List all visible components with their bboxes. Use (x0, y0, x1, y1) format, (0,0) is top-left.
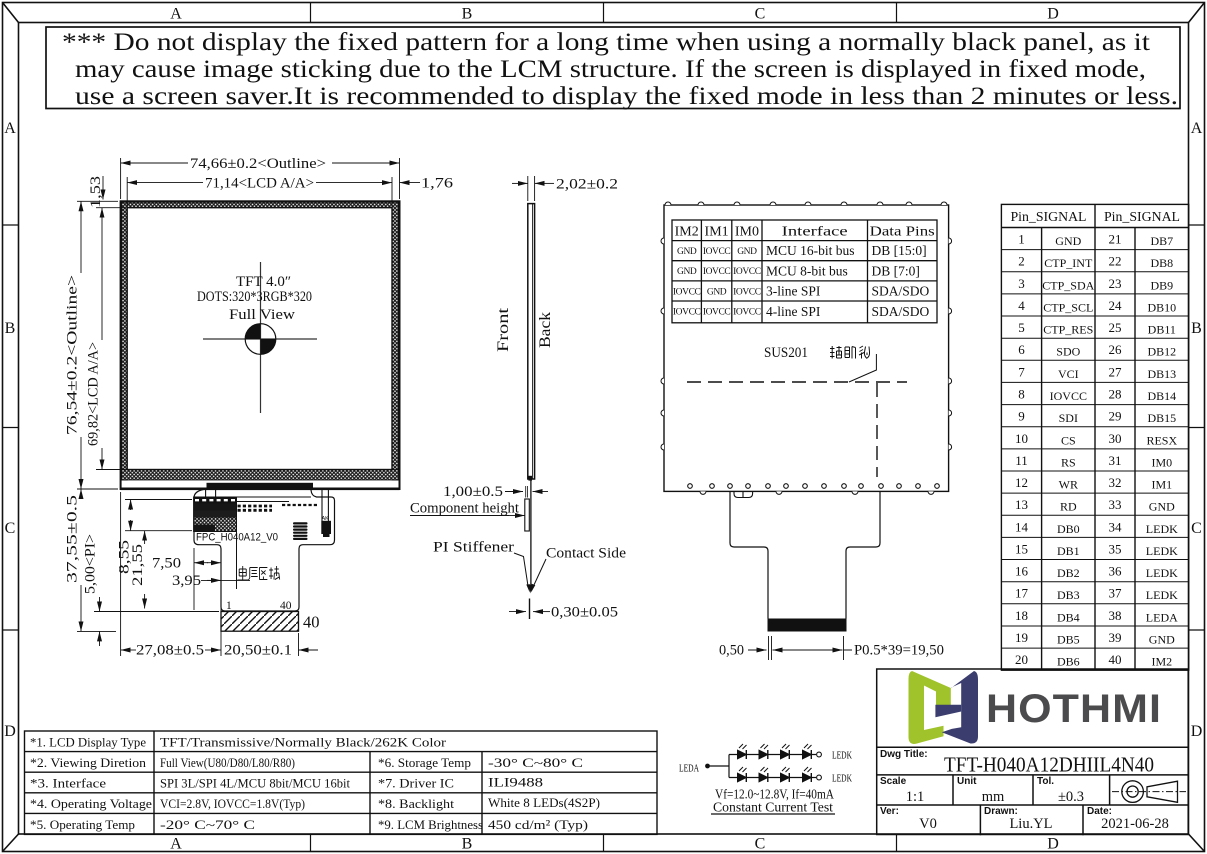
svg-text:Constant Current Test: Constant Current Test (713, 801, 833, 816)
svg-text:24: 24 (1109, 298, 1123, 313)
svg-text:D: D (1047, 6, 1059, 23)
svg-text:CTP_INT: CTP_INT (1044, 256, 1093, 270)
svg-text:26: 26 (1109, 342, 1123, 357)
svg-text:30: 30 (1109, 431, 1122, 446)
svg-text:GND: GND (737, 247, 757, 257)
svg-text:40: 40 (280, 600, 292, 612)
svg-text:LEDK: LEDK (1146, 588, 1178, 602)
svg-text:CTP_SDA: CTP_SDA (1042, 278, 1094, 292)
svg-text:*6. Storage Temp: *6. Storage Temp (378, 755, 471, 770)
svg-text:DB5: DB5 (1057, 633, 1080, 647)
svg-text:SDA/SDO: SDA/SDO (872, 284, 930, 299)
svg-text:10: 10 (1015, 431, 1028, 446)
svg-text:450 cd/m² (Typ): 450 cd/m² (Typ) (488, 817, 588, 832)
svg-text:IM0: IM0 (735, 225, 759, 240)
svg-text:27: 27 (1109, 364, 1123, 379)
svg-text:5,00<PI>: 5,00<PI> (83, 534, 99, 594)
svg-text:Component height: Component height (410, 501, 519, 517)
svg-text:LEDK: LEDK (1146, 522, 1178, 536)
svg-text:LEDK: LEDK (1146, 544, 1178, 558)
svg-text:1: 1 (1018, 232, 1025, 247)
svg-text:A: A (170, 836, 182, 853)
svg-text:40: 40 (303, 613, 320, 632)
svg-text:IM1: IM1 (705, 225, 729, 240)
svg-text:9: 9 (1018, 409, 1025, 424)
svg-text:17: 17 (1015, 586, 1029, 601)
svg-text:-30° C~80° C: -30° C~80° C (488, 755, 583, 770)
svg-text:3,95: 3,95 (172, 573, 201, 589)
svg-text:1,76: 1,76 (421, 176, 453, 192)
svg-text:Full View(U80/D80/L80/R80): Full View(U80/D80/L80/R80) (160, 755, 295, 770)
svg-text:27,08±0.5: 27,08±0.5 (136, 643, 204, 659)
svg-text:7,50: 7,50 (152, 556, 181, 572)
svg-text:MCU 8-bit bus: MCU 8-bit bus (766, 264, 848, 279)
svg-text:Scale: Scale (880, 776, 907, 787)
svg-text:GND: GND (707, 288, 727, 298)
svg-text:11: 11 (1015, 453, 1028, 468)
svg-text:DB0: DB0 (1057, 522, 1080, 536)
svg-text:IOVCC: IOVCC (733, 308, 761, 318)
svg-text:HOTHMI: HOTHMI (986, 687, 1162, 731)
svg-text:Interface: Interface (782, 225, 848, 240)
svg-text:SDO: SDO (1056, 345, 1080, 359)
svg-text:VCI: VCI (1058, 367, 1079, 381)
svg-text:LEDK: LEDK (832, 773, 852, 785)
svg-text:DB12: DB12 (1147, 345, 1176, 359)
svg-text:*2. Viewing Diretion: *2. Viewing Diretion (30, 755, 147, 770)
svg-text:0,30±0.05: 0,30±0.05 (551, 605, 618, 621)
svg-text:76,54±0.2<Outline>: 76,54±0.2<Outline> (65, 275, 81, 435)
svg-text:IOVCC: IOVCC (673, 308, 701, 318)
svg-text:DB4: DB4 (1057, 610, 1080, 624)
svg-text:14: 14 (1015, 519, 1029, 534)
svg-text:LEDK: LEDK (832, 750, 852, 762)
svg-text:25: 25 (1109, 320, 1122, 335)
svg-text:DB7: DB7 (1150, 234, 1173, 248)
svg-text:Front: Front (495, 307, 512, 352)
svg-text:*3. Interface: *3. Interface (30, 776, 106, 791)
svg-text:36: 36 (1109, 564, 1123, 579)
svg-text:1,53: 1,53 (88, 176, 104, 208)
svg-text:FPC_H040A12_V0: FPC_H040A12_V0 (196, 532, 278, 544)
svg-text:DB1: DB1 (1057, 544, 1080, 558)
svg-text:Pin_SIGNAL: Pin_SIGNAL (1011, 209, 1087, 224)
svg-text:B: B (462, 6, 473, 23)
svg-text:*8. Backlight: *8. Backlight (378, 796, 454, 811)
svg-text:*** Do not display the fixed p: *** Do not display the fixed pattern for… (62, 29, 1150, 56)
svg-text:3: 3 (1018, 276, 1025, 291)
svg-text:19: 19 (1015, 630, 1028, 645)
svg-text:13: 13 (1015, 497, 1028, 512)
svg-text:4: 4 (1018, 298, 1025, 313)
svg-text:1: 1 (226, 600, 232, 612)
svg-text:69,82<LCD A/A>: 69,82<LCD A/A> (86, 342, 102, 446)
svg-text:GND: GND (677, 267, 697, 277)
svg-text:6: 6 (1018, 342, 1025, 357)
svg-text:IM0: IM0 (1151, 455, 1172, 469)
svg-text:IOVCC: IOVCC (673, 288, 701, 298)
svg-text:SPI 3L/SPI 4L/MCU 8bit/MCU 16b: SPI 3L/SPI 4L/MCU 8bit/MCU 16bit (160, 776, 350, 791)
svg-text:71,14<LCD A/A>: 71,14<LCD A/A> (205, 176, 314, 192)
svg-text:35: 35 (1109, 542, 1122, 557)
svg-text:Liu.YL: Liu.YL (1009, 816, 1052, 832)
svg-text:A: A (1191, 120, 1203, 137)
svg-text:DB10: DB10 (1147, 300, 1176, 314)
svg-text:A: A (170, 6, 182, 23)
svg-text:B: B (5, 320, 16, 337)
svg-text:32: 32 (1109, 475, 1122, 490)
svg-text:PI Stiffener: PI Stiffener (433, 540, 514, 556)
svg-text:IOVCC: IOVCC (703, 308, 731, 318)
svg-text:CTP_SCL: CTP_SCL (1043, 300, 1093, 314)
svg-text:SDI: SDI (1059, 411, 1078, 425)
svg-text:IM2: IM2 (675, 225, 699, 240)
svg-text:RESX: RESX (1146, 433, 1177, 447)
svg-text:DB [7:0]: DB [7:0] (872, 264, 920, 279)
svg-text:3-line SPI: 3-line SPI (766, 284, 821, 299)
svg-text:Dwg Title:: Dwg Title: (880, 749, 928, 760)
svg-text:DB15: DB15 (1147, 411, 1176, 425)
svg-text:*5. Operating Temp: *5. Operating Temp (30, 817, 135, 832)
svg-text:TFT 4.0″: TFT 4.0″ (236, 274, 291, 290)
svg-text:34: 34 (1109, 519, 1123, 534)
svg-text:C: C (755, 6, 766, 23)
svg-text:20,50±0.1: 20,50±0.1 (224, 643, 292, 659)
svg-text:Back: Back (537, 312, 554, 348)
svg-text:D: D (4, 723, 16, 740)
svg-text:IOVCC: IOVCC (703, 247, 731, 257)
svg-text:*7. Driver IC: *7. Driver IC (378, 776, 454, 791)
svg-text:SUS201: SUS201 (764, 345, 808, 361)
svg-text:LEDA: LEDA (679, 763, 699, 775)
svg-text:40: 40 (1109, 652, 1122, 667)
svg-text:DB3: DB3 (1057, 588, 1080, 602)
svg-text:Ver:: Ver: (880, 806, 899, 817)
svg-text:Pin_SIGNAL: Pin_SIGNAL (1104, 209, 1180, 224)
svg-text:-20° C~70° C: -20° C~70° C (160, 817, 255, 832)
svg-text:37,55±0.5: 37,55±0.5 (65, 495, 81, 583)
svg-text:8: 8 (1018, 387, 1025, 402)
svg-text:22: 22 (1109, 254, 1122, 269)
svg-text:SDA/SDO: SDA/SDO (872, 304, 930, 319)
svg-text:C: C (755, 836, 766, 853)
svg-text:VCI=2.8V, IOVCC=1.8V(Typ): VCI=2.8V, IOVCC=1.8V(Typ) (160, 796, 305, 811)
svg-text:A: A (4, 120, 16, 137)
svg-text:D: D (1191, 723, 1203, 740)
svg-text:2021-06-28: 2021-06-28 (1101, 816, 1169, 832)
svg-text:CS: CS (1061, 433, 1076, 447)
svg-text:DB8: DB8 (1150, 256, 1173, 270)
svg-text:Contact Side: Contact Side (546, 546, 626, 562)
svg-text:DB11: DB11 (1148, 323, 1176, 337)
svg-text:33: 33 (1109, 497, 1122, 512)
svg-text:GND: GND (1055, 234, 1081, 248)
svg-text:29: 29 (1109, 409, 1122, 424)
svg-text:IOVCC: IOVCC (703, 267, 731, 277)
svg-text:12: 12 (1015, 475, 1028, 490)
svg-text:IM2: IM2 (1151, 655, 1172, 669)
svg-text:74,66±0.2<Outline>: 74,66±0.2<Outline> (190, 156, 326, 172)
svg-text:28: 28 (1109, 387, 1122, 402)
svg-text:use a screen saver.It is recom: use a screen saver.It is recommended to … (75, 83, 1178, 110)
svg-text:GND: GND (1149, 633, 1175, 647)
svg-text:IOVCC: IOVCC (1050, 389, 1087, 403)
svg-text:TFT-H040A12DHIIL4N40: TFT-H040A12DHIIL4N40 (944, 753, 1154, 777)
svg-text:V0: V0 (919, 816, 937, 832)
svg-text:RD: RD (1060, 500, 1077, 514)
svg-text:Data Pins: Data Pins (870, 225, 935, 240)
svg-text:39: 39 (1109, 630, 1122, 645)
svg-text:2: 2 (1018, 254, 1025, 269)
svg-text:1:1: 1:1 (906, 789, 925, 805)
svg-text:MCU 16-bit bus: MCU 16-bit bus (766, 243, 855, 258)
svg-text:DOTS:320*3RGB*320: DOTS:320*3RGB*320 (197, 289, 312, 305)
svg-text:2,02±0.2: 2,02±0.2 (556, 177, 618, 193)
svg-text:GND: GND (677, 247, 697, 257)
svg-text:16: 16 (1015, 564, 1029, 579)
svg-text:31: 31 (1109, 453, 1122, 468)
svg-text:7: 7 (1018, 364, 1025, 379)
svg-text:1,00±0.5: 1,00±0.5 (443, 484, 503, 500)
svg-text:DB [15:0]: DB [15:0] (872, 243, 927, 258)
svg-text:TFT/Transmissive/Normally Blac: TFT/Transmissive/Normally Black/262K Col… (160, 735, 447, 750)
svg-text:WR: WR (1059, 478, 1078, 492)
svg-text:IOVCC: IOVCC (733, 288, 761, 298)
svg-text:Tol.: Tol. (1037, 776, 1054, 787)
svg-text:White 8 LEDs(4S2P): White 8 LEDs(4S2P) (488, 795, 600, 810)
svg-text:ILI9488: ILI9488 (488, 775, 543, 790)
svg-text:38: 38 (1109, 608, 1122, 623)
svg-text:*4. Operating Voltage: *4. Operating Voltage (30, 796, 152, 811)
svg-text:IM1: IM1 (1151, 478, 1172, 492)
svg-text:D: D (1047, 836, 1059, 853)
svg-text:*9. LCM Brightness: *9. LCM Brightness (378, 817, 483, 832)
svg-text:IOVCC: IOVCC (733, 267, 761, 277)
svg-text:LEDK: LEDK (1146, 566, 1178, 580)
svg-text:DB9: DB9 (1150, 278, 1173, 292)
svg-text:21,55: 21,55 (130, 544, 146, 586)
svg-text:4-line SPI: 4-line SPI (766, 304, 821, 319)
svg-text:DB6: DB6 (1057, 655, 1080, 669)
svg-text:15: 15 (1015, 542, 1028, 557)
svg-text:RS: RS (1061, 455, 1076, 469)
svg-text:C: C (1191, 520, 1202, 537)
svg-text:mm: mm (982, 789, 1005, 805)
svg-text:Full View: Full View (229, 307, 295, 323)
svg-text:may cause image sticking due t: may cause image sticking due to the LCM … (75, 56, 1146, 83)
svg-text:*1. LCD Display Type: *1. LCD Display Type (30, 735, 146, 750)
svg-text:20: 20 (1015, 652, 1028, 667)
svg-text:23: 23 (1109, 276, 1122, 291)
svg-text:B: B (462, 836, 473, 853)
svg-text:C: C (5, 520, 16, 537)
svg-text:DB14: DB14 (1147, 389, 1176, 403)
svg-text:±0.3: ±0.3 (1058, 789, 1084, 805)
svg-text:DB13: DB13 (1147, 367, 1176, 381)
svg-text:5: 5 (1018, 320, 1025, 335)
svg-text:18: 18 (1015, 608, 1028, 623)
svg-text:21: 21 (1109, 232, 1122, 247)
svg-text:LEDA: LEDA (1146, 610, 1178, 624)
svg-text:0,50: 0,50 (719, 643, 744, 659)
svg-text:37: 37 (1109, 586, 1123, 601)
svg-text:B: B (1191, 320, 1202, 337)
svg-text:GND: GND (1149, 500, 1175, 514)
svg-text:Unit: Unit (957, 776, 977, 787)
svg-text:CTP_RES: CTP_RES (1043, 323, 1093, 337)
svg-text:P0.5*39=19,50: P0.5*39=19,50 (854, 643, 944, 659)
svg-text:DB2: DB2 (1057, 566, 1080, 580)
